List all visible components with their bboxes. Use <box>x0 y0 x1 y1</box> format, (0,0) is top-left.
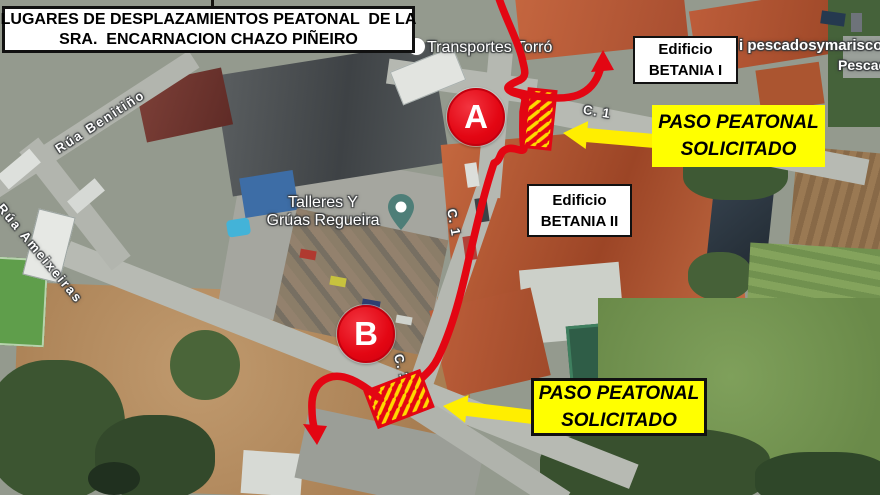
route-marker-b: B <box>337 305 395 363</box>
label-rua-benitino: Rúa Benitiño <box>52 87 148 156</box>
trees <box>170 330 240 400</box>
map-pin-icon <box>388 194 414 230</box>
betania2-line2: BETANIA II <box>541 211 619 232</box>
betania1-line2: BETANIA I <box>649 60 722 81</box>
paso-bottom-line2: SOLICITADO <box>561 407 677 434</box>
label-talleres-line2: Grúas Regueira <box>267 212 380 229</box>
label-transportes-torro: Transportes Torró <box>427 39 552 57</box>
building-roof <box>241 450 304 495</box>
paso-bottom-line1: PASO PEATONAL <box>539 380 699 407</box>
label-talleres-gruas: Talleres Y Grúas Regueira <box>258 194 388 230</box>
title-line1: LUGARES DE DESPLAZAMIENTOS PEATONAL DE L… <box>1 10 417 30</box>
parked-car <box>851 13 862 32</box>
betania2-card: Edificio BETANIA II <box>527 184 632 237</box>
pond <box>88 462 140 495</box>
trees <box>755 452 880 495</box>
betania1-line1: Edificio <box>658 39 712 60</box>
label-pescados-line2: Pescado <box>838 57 880 73</box>
betania1-card: Edificio BETANIA I <box>633 36 738 84</box>
artifact-line <box>211 0 214 7</box>
route-arrowhead-up <box>591 50 614 72</box>
paso-callout-bottom: PASO PEATONAL SOLICITADO <box>531 378 707 436</box>
title-card: LUGARES DE DESPLAZAMIENTOS PEATONAL DE L… <box>2 6 415 53</box>
pool <box>226 217 251 237</box>
paso-top-line2: SOLICITADO <box>681 136 797 163</box>
label-pescados-line1: i pescadosymarisco <box>739 37 880 54</box>
trees <box>688 252 752 300</box>
marker-a-letter: A <box>464 98 488 136</box>
paso-top-line1: PASO PEATONAL <box>658 109 818 136</box>
label-talleres-line1: Talleres Y <box>288 194 358 211</box>
betania2-line1: Edificio <box>552 190 606 211</box>
title-line2: SRA. ENCARNACION CHAZO PIÑEIRO <box>59 30 358 50</box>
paso-callout-top: PASO PEATONAL SOLICITADO <box>652 105 825 167</box>
marker-b-letter: B <box>354 315 378 353</box>
route-marker-a: A <box>447 88 505 146</box>
annotated-satellite-map: Transportes Torró Talleres Y Grúas Regue… <box>0 0 880 495</box>
